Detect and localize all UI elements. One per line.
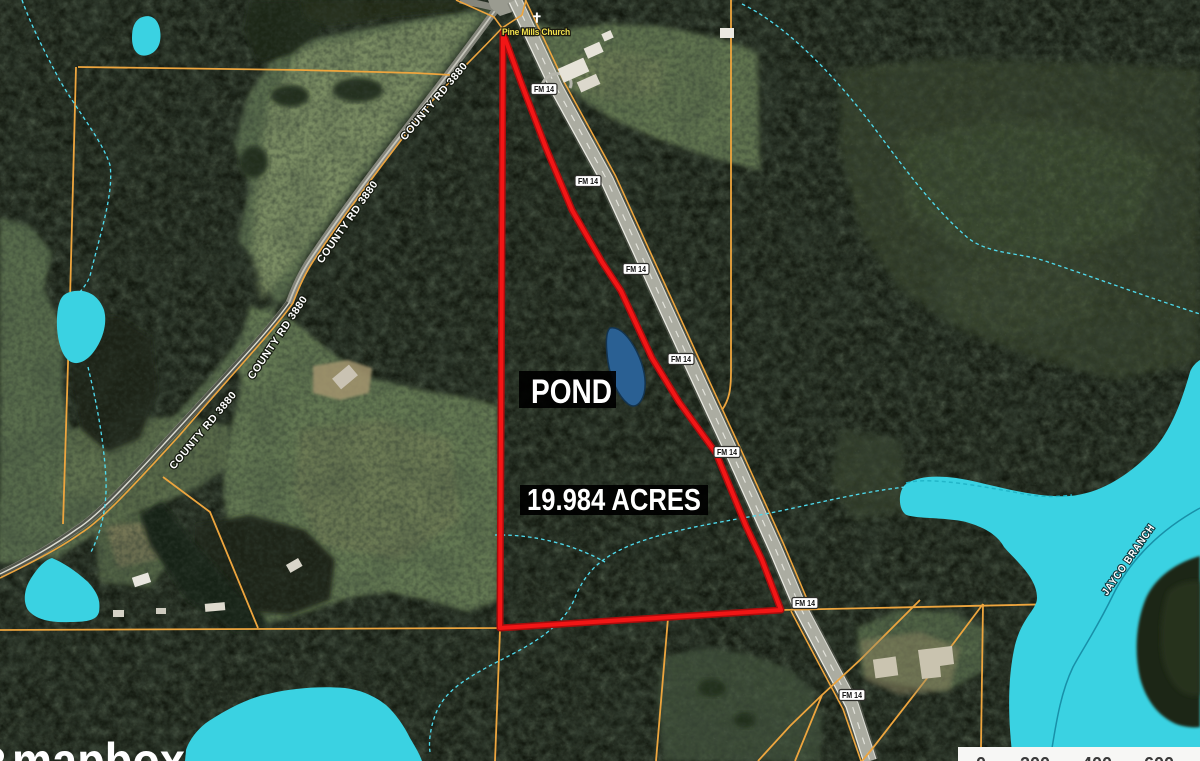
svg-text:FM 14: FM 14 [795, 598, 815, 608]
svg-text:FM 14: FM 14 [717, 447, 737, 457]
svg-text:FM 14: FM 14 [534, 84, 554, 94]
svg-text:0: 0 [976, 754, 986, 761]
svg-text:19.984 ACRES: 19.984 ACRES [527, 482, 701, 517]
svg-text:FM 14: FM 14 [671, 354, 691, 364]
svg-text:200: 200 [1020, 754, 1050, 761]
svg-text:POND: POND [531, 373, 612, 411]
svg-text:FM 14: FM 14 [578, 176, 598, 186]
svg-text:600: 600 [1144, 754, 1174, 761]
svg-text:Pine Mills Church: Pine Mills Church [502, 27, 570, 37]
svg-text:400: 400 [1082, 754, 1112, 761]
svg-text:FM 14: FM 14 [842, 690, 862, 700]
svg-text:FM 14: FM 14 [626, 264, 646, 274]
svg-text:mapbox: mapbox [12, 733, 185, 761]
